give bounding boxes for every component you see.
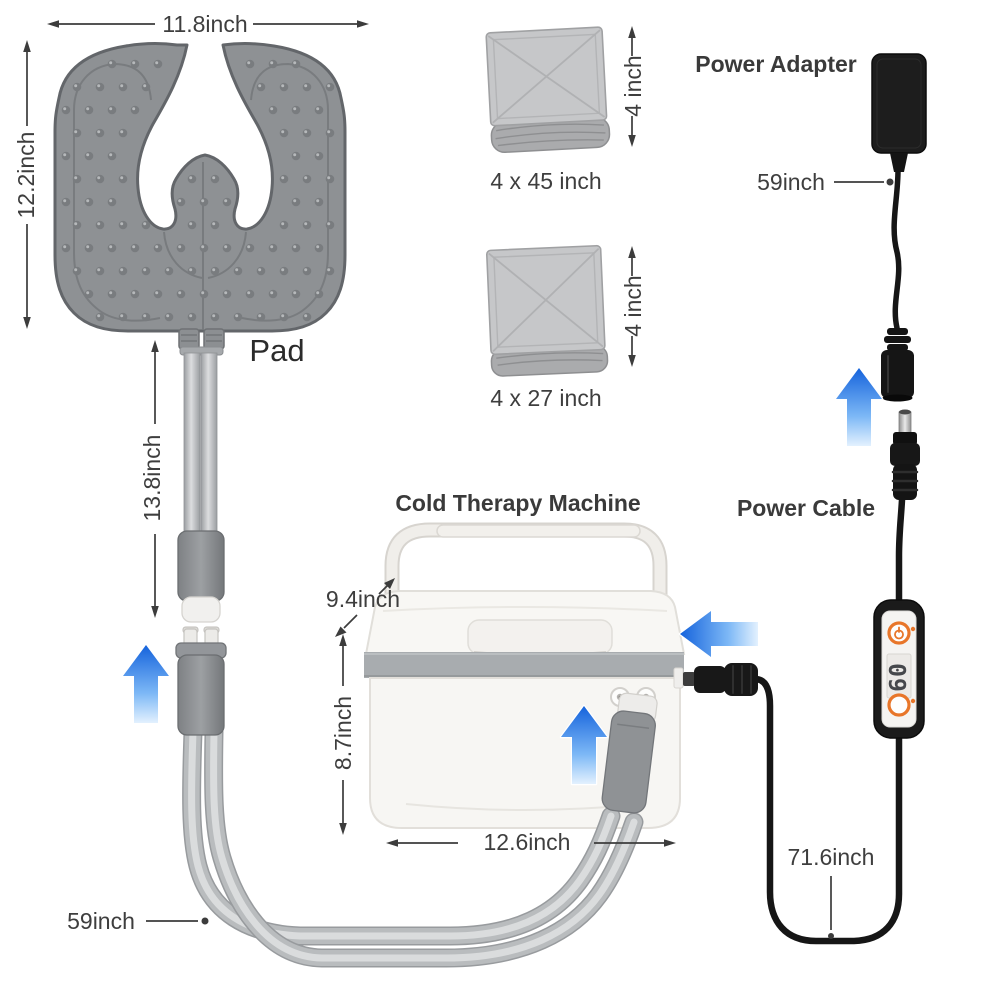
controller-display-value: 60 xyxy=(885,647,913,707)
pad-height-dim: 12.2inch xyxy=(13,115,39,235)
machine-depth-dim: 9.4inch xyxy=(313,586,413,612)
pad-tube-connector xyxy=(178,531,224,601)
strap2-width-dim: 4 inch xyxy=(620,251,646,361)
handle-grip xyxy=(437,525,640,537)
pad-nozzles xyxy=(179,329,224,355)
cold-pad xyxy=(55,44,345,355)
product-diagram: 11.8inch 12.2inch 13.8inch Pad 4 x 45 in… xyxy=(0,0,1000,1000)
power-cable-length-dim: 71.6inch xyxy=(776,844,886,870)
lid-grip-recess xyxy=(468,620,612,654)
pad-tube-length-dim: 13.8inch xyxy=(139,418,165,538)
power-cable-title: Power Cable xyxy=(726,495,886,521)
cable-male-plug xyxy=(890,410,920,501)
up-arrow-icon xyxy=(836,368,882,446)
dc-plug xyxy=(683,663,758,696)
adapter-cable xyxy=(894,170,899,328)
power-adapter-title: Power Adapter xyxy=(681,51,871,77)
hose-connector xyxy=(176,627,226,735)
up-arrow-icon xyxy=(123,645,169,723)
adapter-cable-dim: 59inch xyxy=(751,169,831,195)
power-adapter-brick xyxy=(872,54,926,172)
pad-tube-assembly xyxy=(178,353,224,622)
machine-seal-band xyxy=(364,652,684,678)
pad-tube-coupler-tip xyxy=(182,597,220,622)
left-arrow-icon xyxy=(680,611,758,657)
strap1-size-label: 4 x 45 inch xyxy=(476,168,616,194)
hose-length-dim: 59inch xyxy=(61,908,141,934)
machine-power-jack xyxy=(674,668,683,688)
strap2-size-label: 4 x 27 inch xyxy=(476,385,616,411)
strap-27inch xyxy=(487,245,608,376)
machine-width-dim: 12.6inch xyxy=(462,829,592,855)
machine-title: Cold Therapy Machine xyxy=(383,490,653,516)
strap-45inch xyxy=(486,27,610,153)
pad-width-dim: 11.8inch xyxy=(150,11,260,37)
cable-female-jack xyxy=(881,328,914,402)
power-button-icon[interactable] xyxy=(889,623,909,643)
machine-height-dim: 8.7inch xyxy=(330,678,356,788)
pad-label: Pad xyxy=(232,338,322,364)
indicator-led xyxy=(911,627,915,631)
strap1-width-dim: 4 inch xyxy=(620,31,646,141)
